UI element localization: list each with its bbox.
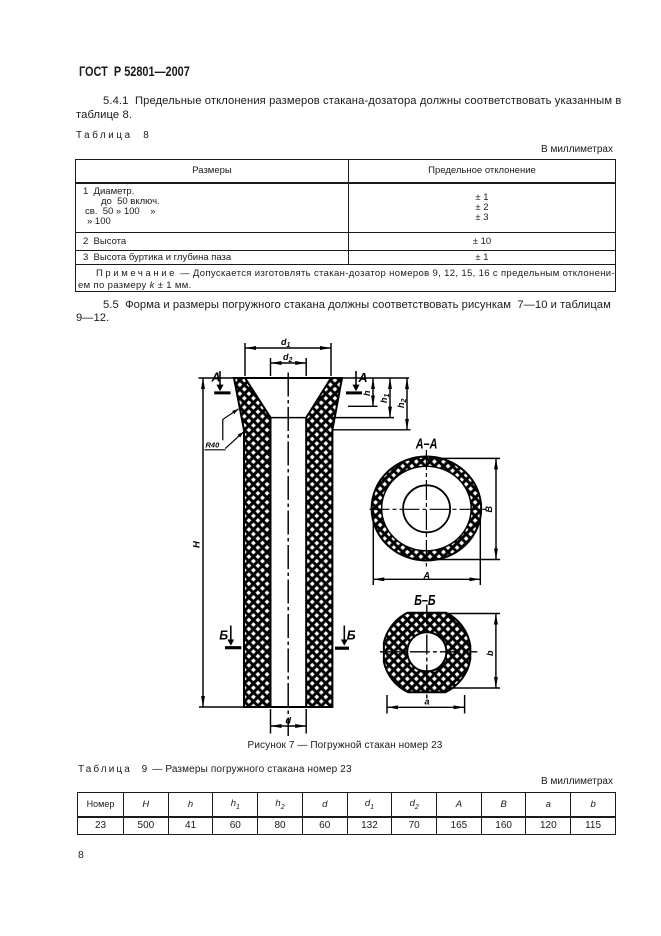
svg-text:h2: h2 [396, 399, 408, 409]
svg-text:h1: h1 [379, 394, 391, 404]
svg-text:А: А [358, 371, 368, 385]
svg-text:Н: Н [192, 540, 203, 548]
svg-text:В: В [484, 506, 494, 513]
svg-text:b: b [485, 650, 495, 656]
svg-text:d1: d1 [281, 337, 291, 349]
svg-text:d: d [286, 715, 292, 725]
svg-text:а: а [425, 697, 430, 707]
svg-text:А: А [423, 571, 431, 581]
svg-text:А–А: А–А [415, 435, 437, 452]
svg-text:Б: Б [347, 629, 356, 643]
svg-text:h: h [362, 390, 372, 396]
svg-text:R40: R40 [206, 441, 221, 450]
svg-text:А: А [211, 371, 221, 385]
svg-text:Б–Б: Б–Б [414, 591, 435, 608]
svg-text:Б: Б [219, 629, 228, 643]
svg-text:d2: d2 [283, 352, 293, 364]
